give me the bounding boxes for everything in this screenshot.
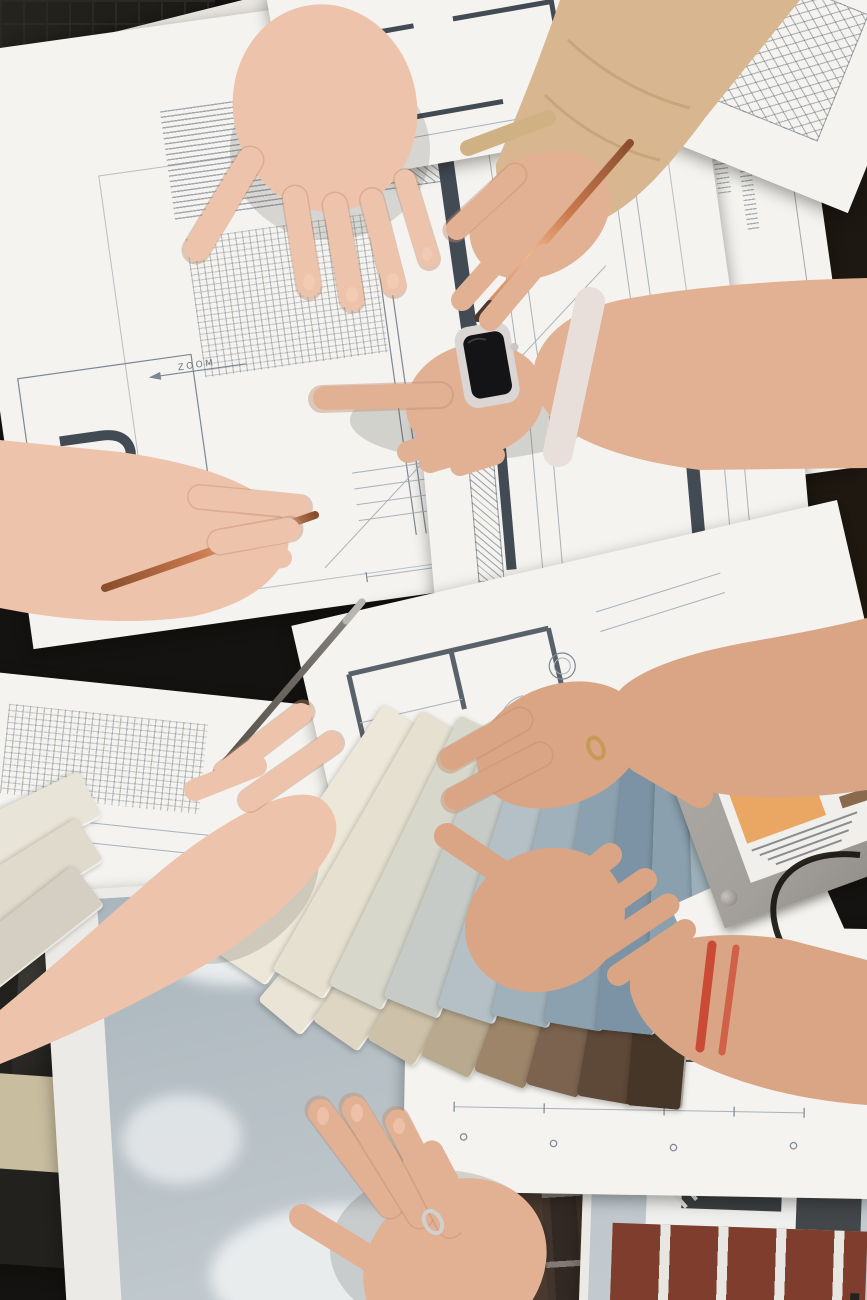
fingernails — [303, 247, 432, 303]
photo-scene: ZOOM — [0, 0, 867, 1300]
hand-holding-brown-swatch-fan — [441, 822, 867, 1105]
sweater-arm-holding-copper-pen — [444, 0, 800, 320]
hand-holding-copper-pen — [0, 440, 315, 621]
hand-holding-swatch-fan — [450, 618, 867, 831]
people-layer — [0, 0, 867, 1300]
forearm-red-bracelet — [630, 935, 867, 1105]
arm-with-smartwatch-pointing — [322, 278, 867, 472]
hand-holding-gray-pen — [0, 602, 362, 1064]
hand-spread-on-blueprint — [196, 0, 434, 303]
hand-resting-on-photo — [302, 1104, 581, 1300]
